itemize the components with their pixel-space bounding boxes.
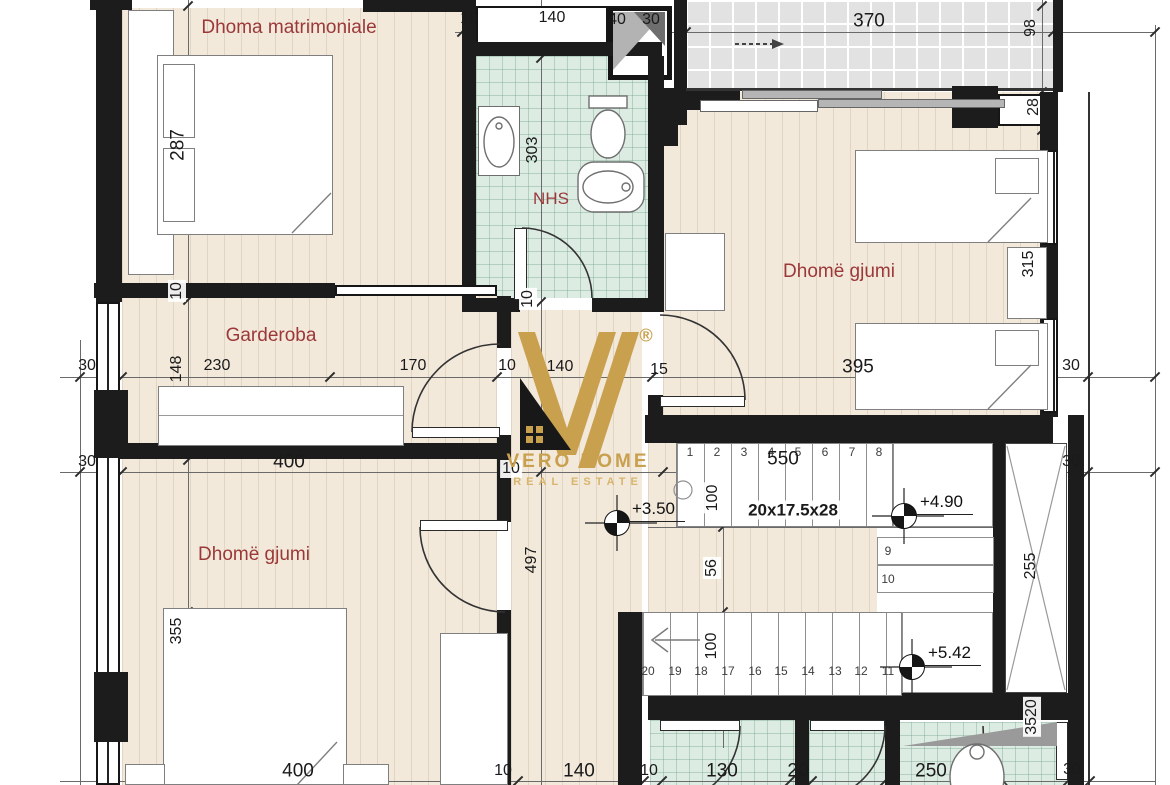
dim-label: 56 <box>703 557 721 579</box>
dim-label: 230 <box>204 358 231 374</box>
dim-label: 30 <box>1062 454 1080 470</box>
dim-label: 20 <box>787 762 808 781</box>
step-number: 9 <box>885 544 892 558</box>
dim-label: 400 <box>273 453 305 472</box>
step-number: 19 <box>668 664 681 678</box>
room-label-bedroom-right: Dhomë gjumi <box>783 261 895 283</box>
logo-registered-mark: ® <box>639 326 652 347</box>
dim-label: 30 <box>78 358 96 374</box>
dim-label: 550 <box>767 450 799 469</box>
elevation-marker-hall <box>604 510 630 536</box>
dim-label: 400 <box>282 762 314 781</box>
step-number: 6 <box>822 445 829 459</box>
dim-label: 303 <box>525 137 541 164</box>
door-arc-bedroom-right <box>660 315 745 400</box>
stair-spec-label: 20x17.5x28 <box>746 501 840 520</box>
dim-label: 250 <box>915 762 947 781</box>
toilet-2-flush <box>970 745 984 759</box>
logo-tagline: REAL ESTATE <box>513 476 643 488</box>
step-number: 13 <box>828 664 841 678</box>
step-number: 17 <box>721 664 734 678</box>
dim-label: 497 <box>524 547 540 574</box>
step-number: 8 <box>876 445 883 459</box>
dim-label: 287 <box>169 129 188 161</box>
hall-circle-symbol <box>674 481 692 499</box>
dim-label: 255 <box>1023 553 1039 580</box>
toilet-bowl <box>591 110 625 158</box>
dim-label: 130 <box>706 762 738 781</box>
dim-label: 10 <box>640 763 658 779</box>
step-number: 2 <box>714 445 721 459</box>
elevation-label-landing: +4.90 <box>916 492 973 515</box>
step-number: 20 <box>641 664 654 678</box>
dim-label: 98 <box>1023 19 1039 37</box>
step-number: 7 <box>849 445 856 459</box>
sink-tap <box>496 123 502 129</box>
dim-label: 3520 <box>1023 697 1041 737</box>
stair-direction-arrow <box>652 628 700 652</box>
elevation-marker-top <box>899 654 925 680</box>
floor-plan-canvas: 1 2 3 4 5 6 7 8 9 10 20 19 18 17 16 15 1… <box>0 0 1170 785</box>
step-number: 15 <box>774 664 787 678</box>
dim-label: 100 <box>703 631 721 662</box>
dim-label: 315 <box>1021 251 1037 278</box>
room-label-bathroom: NHS <box>533 189 569 209</box>
dim-label: 140 <box>563 762 595 781</box>
dim-label: 10 <box>460 11 478 27</box>
logo-brand-name: VERO HOME <box>506 451 649 473</box>
elevation-marker-landing <box>891 503 917 529</box>
step-number: 1 <box>687 445 694 459</box>
dim-label: 148 <box>169 356 185 383</box>
dim-label: 30 <box>642 12 660 28</box>
toilet-tank <box>589 96 627 108</box>
dim-label: 10 <box>519 288 537 310</box>
dim-label: 30 <box>78 454 96 470</box>
step-number: 3 <box>741 445 748 459</box>
bathtub-drain <box>622 183 630 191</box>
room-label-wardrobe: Garderoba <box>226 325 317 347</box>
dim-label: 370 <box>853 12 885 31</box>
step-number: 16 <box>748 664 761 678</box>
room-label-master: Dhoma matrimoniale <box>201 17 376 39</box>
elevation-label-hall: +3.50 <box>628 499 685 522</box>
door-arc-bath-2 <box>810 726 885 785</box>
dim-label: 28 <box>1026 98 1042 116</box>
room-label-bedroom-left: Dhomë gjumi <box>198 544 310 566</box>
terrace-direction-arrow <box>735 39 784 49</box>
dim-label: 30 <box>1063 762 1081 778</box>
step-number: 10 <box>881 572 894 586</box>
dim-label: 170 <box>400 358 427 374</box>
dim-label: 100 <box>704 483 722 514</box>
step-number: 12 <box>854 664 867 678</box>
elevation-label-top: +5.42 <box>924 643 981 666</box>
door-arc-bedroom-left <box>420 527 505 612</box>
dim-label: 40 <box>608 12 626 28</box>
step-number: 18 <box>694 664 707 678</box>
dim-label: 355 <box>169 618 185 645</box>
dim-label: 395 <box>842 358 874 377</box>
step-number: 11 <box>882 664 894 678</box>
dim-label: 10 <box>168 280 186 302</box>
dim-label: 30 <box>1062 358 1080 374</box>
dim-label: 140 <box>539 10 566 26</box>
dim-label: 10 <box>494 763 512 779</box>
step-number: 14 <box>801 664 814 678</box>
